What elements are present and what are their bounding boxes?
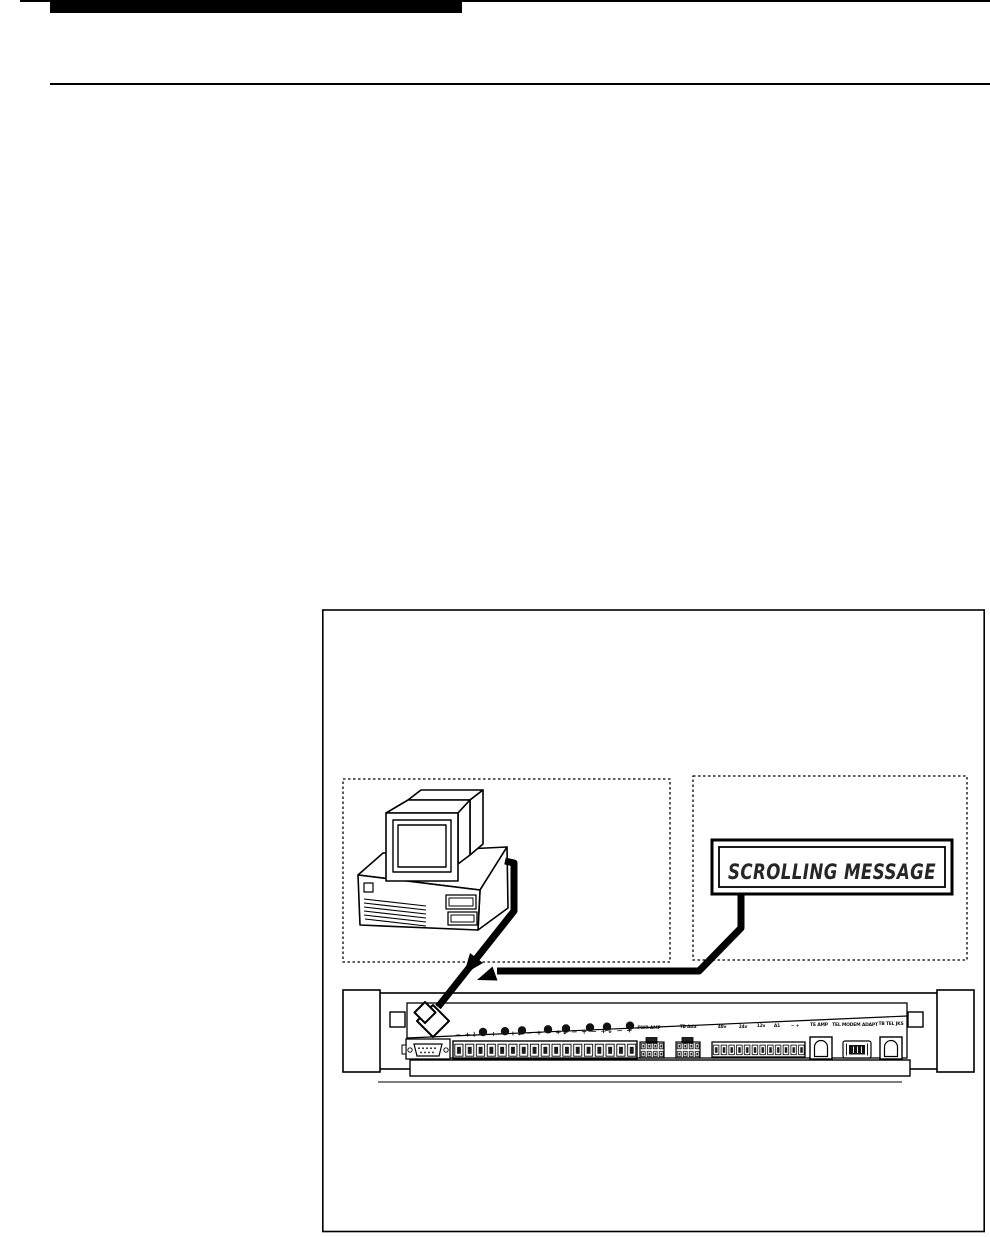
panel-label: TB Ada: [680, 1024, 697, 1030]
panel-label: A1: [774, 1023, 780, 1029]
rack-ear-right: [937, 990, 974, 1072]
header-black-bar: [50, 0, 462, 13]
figure-frame: SCROLLING MESSAGE − +↓ − + − +↓ − + − +↓…: [322, 608, 985, 1233]
phone-jack-2: [880, 1037, 902, 1059]
led-sign-text: SCROLLING MESSAGE: [728, 860, 936, 884]
monitor-screen: [398, 825, 446, 867]
panel-label: 12v: [757, 1023, 766, 1029]
computer-illustration: [358, 790, 508, 930]
device-front-lip: [410, 1060, 910, 1076]
modem-switch: [843, 1041, 871, 1058]
terminal-strip-2: [712, 1042, 805, 1057]
db9-connector: [402, 1039, 450, 1059]
db9-shell: [414, 1044, 442, 1056]
phone-jack-1: [810, 1037, 832, 1059]
hookup-diagram: SCROLLING MESSAGE − +↓ − + − +↓ − + − +↓…: [322, 608, 985, 1233]
screw-hole-left: [390, 1012, 405, 1027]
arrow-left-icon: [477, 967, 498, 981]
db9-screw-right: [444, 1048, 448, 1052]
panel-label: 48v: [718, 1024, 727, 1030]
drive-bay-2-inner: [451, 915, 474, 922]
panel-label: 24v: [739, 1024, 748, 1030]
power-button: [364, 883, 373, 892]
panel-label: PWR AMP: [637, 1025, 661, 1031]
panel-label: TB TEL JKS: [878, 1021, 903, 1027]
panel-label: TE AMP: [810, 1022, 829, 1028]
db9-screw-left: [408, 1048, 412, 1052]
screw-hole-right: [908, 1012, 923, 1027]
rack-ear-left: [343, 990, 380, 1072]
db9-side-tab: [402, 1045, 406, 1054]
panel-label: − +: [791, 1023, 800, 1029]
header-rule: [50, 83, 990, 85]
monitor-top: [386, 800, 470, 813]
led-sign: SCROLLING MESSAGE: [712, 840, 952, 894]
drive-bay-1-inner: [449, 898, 473, 906]
monitor-side-back: [470, 790, 483, 855]
panel-label: TEL MODEM ADAPT: [832, 1022, 879, 1028]
terminal-strip-1: [453, 1041, 637, 1059]
